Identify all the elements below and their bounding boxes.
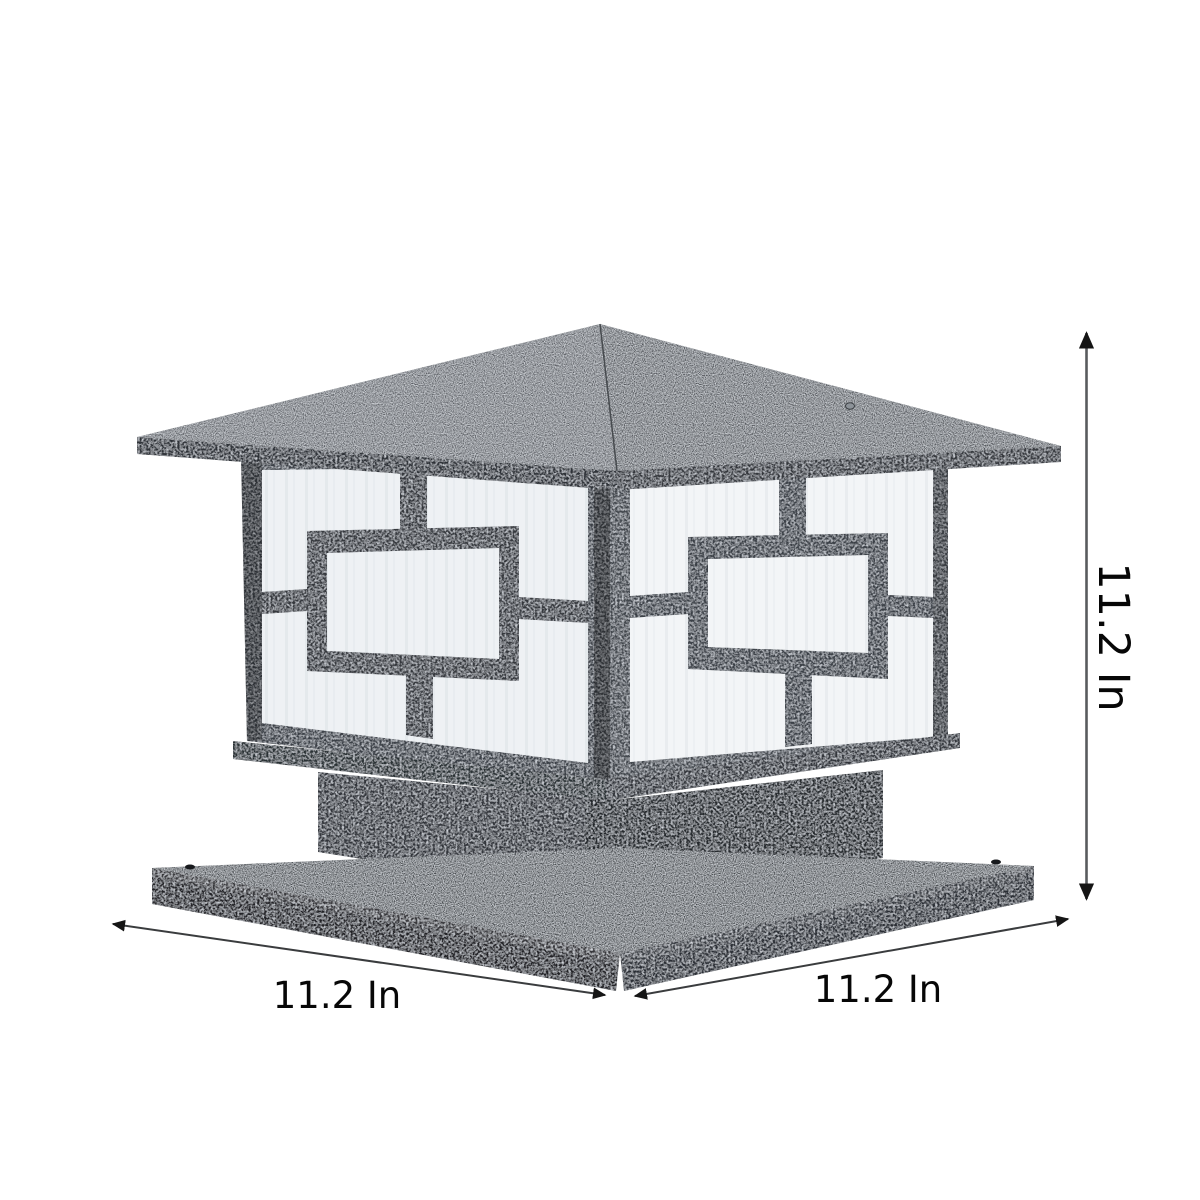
lattice-right-left-bar (630, 592, 688, 618)
lattice-left-left-bar (262, 589, 307, 614)
product-dimension-figure: 11.2 In 11.2 In 11.2 In (0, 0, 1200, 1200)
lattice-right-bottom-bar (785, 670, 812, 747)
lattice-left-right-bar (519, 597, 588, 623)
height-dimension-label: 11.2 In (1088, 562, 1138, 711)
lattice-right-right-bar (888, 595, 933, 618)
lantern-diagram-canvas: 11.2 In 11.2 In 11.2 In (0, 0, 1200, 1200)
body-right-edge-shade (933, 463, 948, 737)
roof-face-right (600, 324, 1061, 471)
roof-screw (846, 403, 855, 409)
lattice-left-bottom-bar (406, 672, 433, 739)
lantern (137, 324, 1061, 991)
body-left-edge-shade (241, 455, 262, 741)
body-corner-shade (594, 452, 610, 782)
depth-dimension-label: 11.2 In (814, 968, 943, 1011)
base-screw-hole-right (991, 860, 1001, 865)
base-screw-hole-left (185, 865, 195, 870)
width-dimension-label: 11.2 In (273, 974, 402, 1017)
